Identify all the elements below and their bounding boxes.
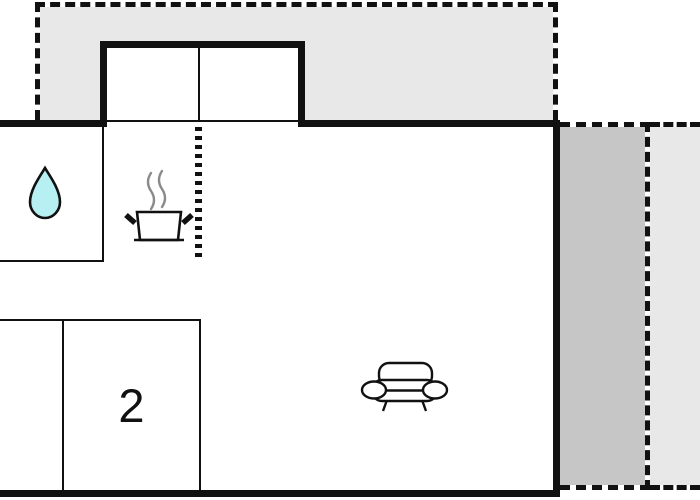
bedroom-wall-right (199, 319, 201, 492)
sofa-icon (354, 350, 449, 415)
wall-under-recess (100, 120, 305, 122)
bedroom-label: 2 (118, 378, 144, 433)
wall-top-left (0, 120, 100, 127)
terrace-right-inner (560, 122, 650, 490)
steam-icon (148, 171, 165, 209)
floorplan-canvas: 2 (0, 0, 700, 500)
bathroom-wall-right (102, 122, 104, 262)
kitchen-partition-dotted-line (195, 127, 202, 261)
cooking-pot-icon (124, 166, 194, 246)
bathroom-wall-bottom (0, 260, 104, 262)
wall-top-right (298, 120, 560, 127)
wall-bottom (0, 490, 560, 497)
entry-recess-divider-line (198, 48, 200, 121)
wall-right (553, 120, 560, 497)
water-drop-icon (25, 165, 65, 221)
bedroom-area: 2 (64, 321, 199, 490)
entry-recess-box (100, 41, 305, 127)
terrace-right-outer (650, 122, 700, 490)
